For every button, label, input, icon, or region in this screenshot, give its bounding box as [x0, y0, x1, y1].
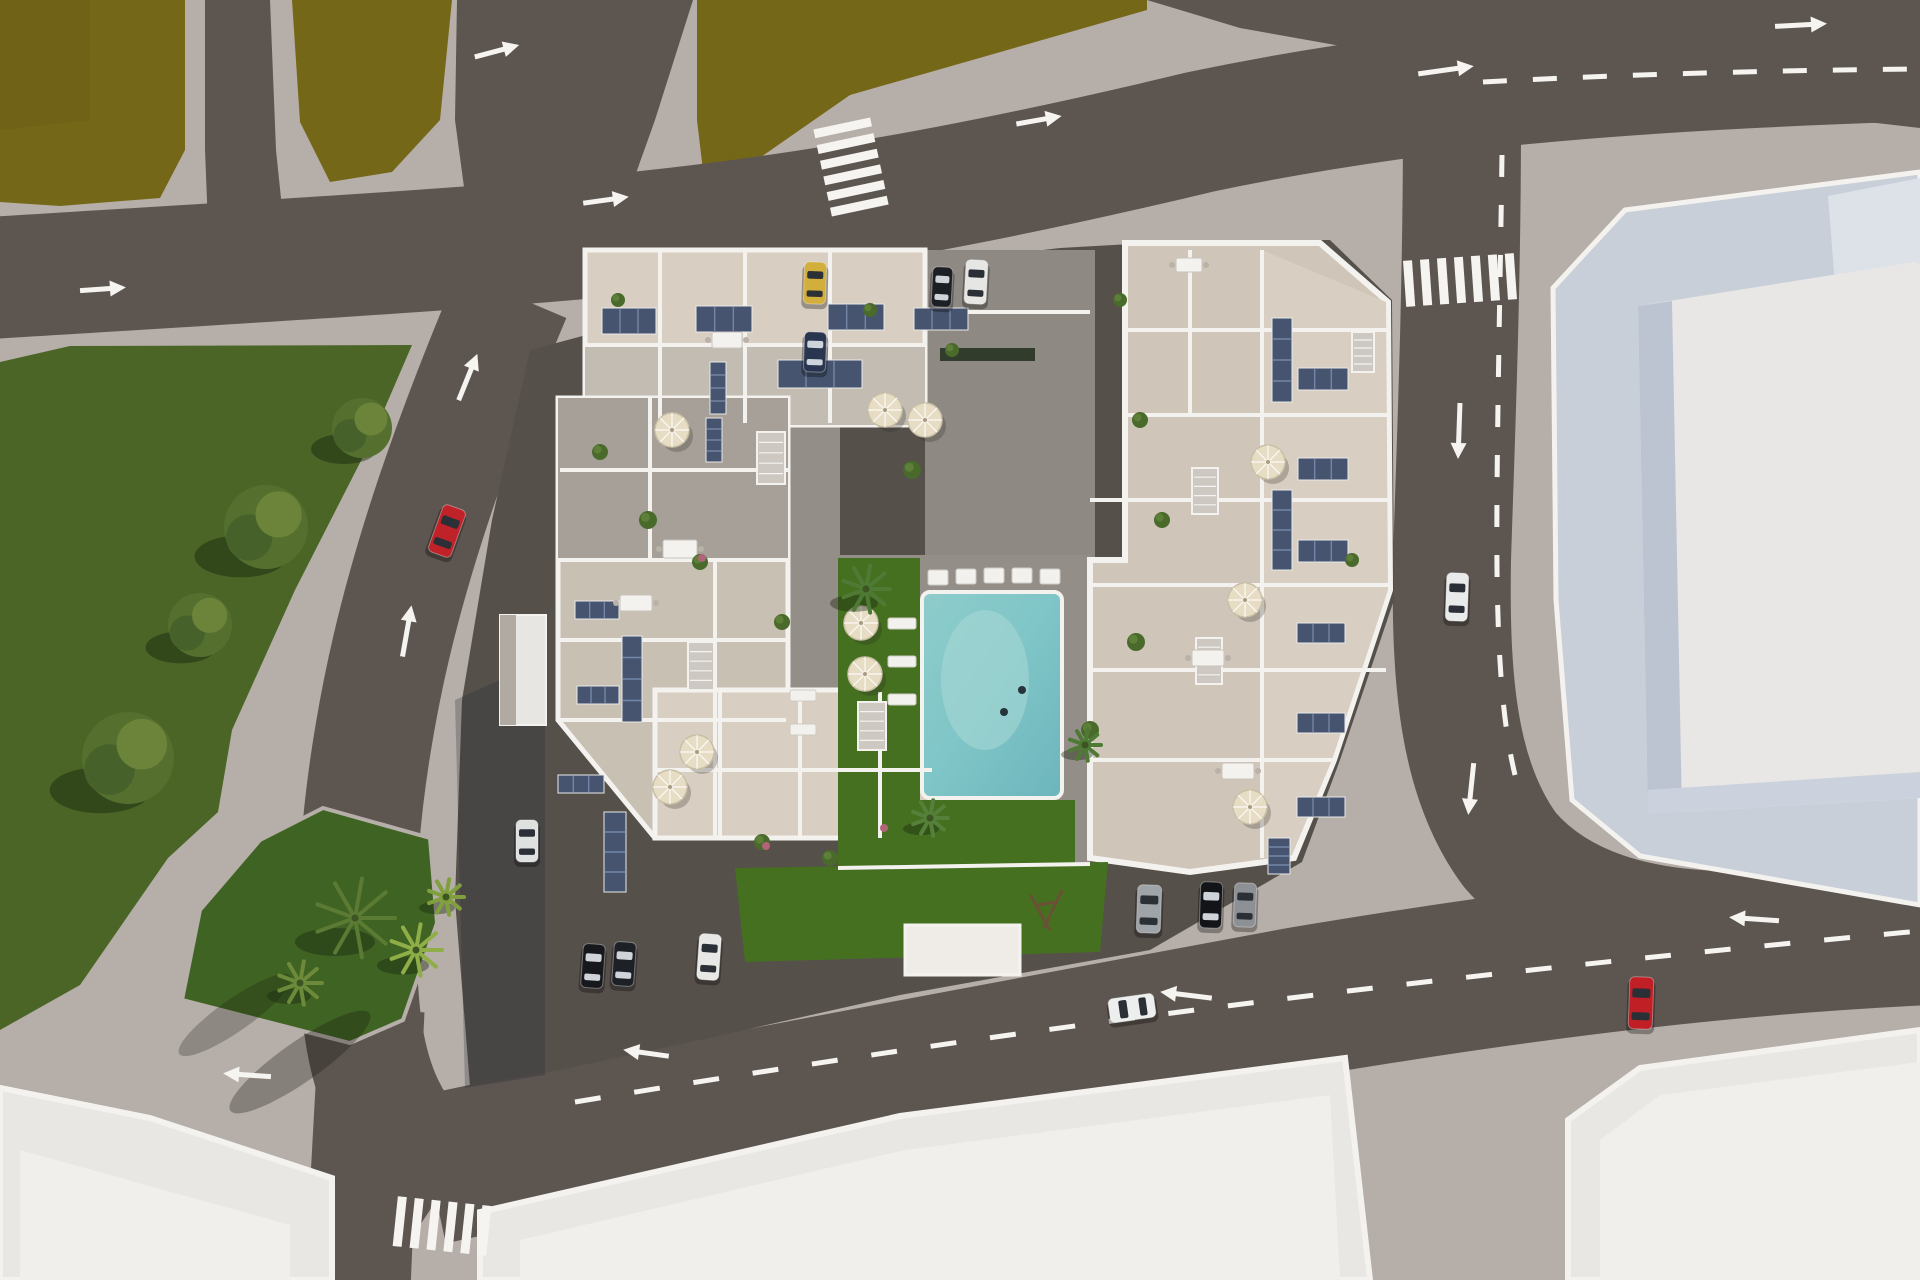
sun-lounger	[790, 724, 816, 735]
flower-pot	[880, 824, 888, 832]
solar-panel	[558, 775, 604, 793]
car-dark-parked-south-2	[609, 941, 638, 992]
sun-lounger	[956, 569, 976, 584]
car-white-parked-west	[514, 820, 540, 867]
solar-panel	[602, 308, 656, 334]
shrub	[1154, 512, 1170, 528]
swimmer-1	[1018, 686, 1026, 694]
stairwell	[858, 702, 886, 750]
patio-table	[1185, 650, 1231, 666]
car-red-bottom-right	[1626, 977, 1656, 1035]
car-yellow-parked-top	[801, 262, 829, 310]
shrub	[592, 444, 608, 460]
solar-panel	[1297, 713, 1345, 733]
solar-panel	[706, 418, 722, 462]
solar-panel	[1272, 318, 1292, 402]
shrub	[1127, 633, 1145, 651]
flower-pot	[698, 554, 706, 562]
pool-highlight	[941, 610, 1029, 750]
shrub	[1345, 553, 1359, 567]
car-gray-parked-southeast	[1231, 883, 1259, 933]
aerial-render	[0, 0, 1920, 1280]
solar-panel	[575, 601, 619, 619]
car-black-parked-southeast	[1197, 882, 1225, 934]
garden-wall	[905, 925, 1020, 975]
shrub	[822, 850, 838, 866]
stairwell	[757, 432, 785, 484]
solar-panel	[710, 362, 726, 414]
shrub	[639, 511, 657, 529]
stairwell	[1192, 468, 1218, 514]
shrub	[1132, 412, 1148, 428]
solar-panel	[577, 686, 619, 704]
sun-lounger	[1040, 569, 1060, 584]
shrub	[774, 614, 790, 630]
car-dark-parked-south-1	[578, 943, 607, 994]
solar-panel	[604, 812, 626, 892]
patio-table	[1215, 763, 1261, 779]
solar-panel	[1297, 797, 1345, 817]
solar-panel	[1272, 490, 1292, 570]
car-white-parked-top	[962, 259, 991, 309]
sun-lounger	[984, 568, 1004, 583]
solar-panel	[1268, 838, 1290, 874]
car-black-parked-top	[929, 266, 955, 312]
car-silver-parked-southeast	[1134, 885, 1164, 939]
sun-lounger	[888, 618, 916, 629]
field-texture-patch	[0, 0, 90, 130]
road-bottom-left-leg	[358, 1010, 372, 1280]
shrub	[945, 343, 959, 357]
sun-lounger	[1012, 568, 1032, 583]
patio-table	[705, 332, 749, 348]
shrub	[863, 303, 877, 317]
car-white-parked-south	[694, 933, 723, 986]
big-building-northeast	[1553, 172, 1920, 905]
solar-panel	[1298, 540, 1348, 562]
car-darkblue-parked-top	[801, 332, 829, 378]
swimmer-2	[1000, 708, 1008, 716]
solar-panel	[1297, 623, 1345, 643]
flower-pot	[762, 842, 770, 850]
car-white-right-road	[1443, 573, 1471, 627]
stairwell	[688, 642, 714, 690]
shrub	[903, 461, 921, 479]
stairwell	[1352, 332, 1374, 372]
solar-panel	[1298, 458, 1348, 480]
solar-panel	[1298, 368, 1348, 390]
solar-panel	[622, 636, 642, 722]
shrub	[1113, 293, 1127, 307]
solar-panel	[696, 306, 752, 332]
sun-lounger	[790, 690, 816, 701]
pool-lawn-south	[838, 800, 1075, 868]
site-plan-canvas	[0, 0, 1920, 1280]
utility-building-west	[500, 615, 546, 725]
sun-lounger	[888, 656, 916, 667]
sun-lounger	[888, 694, 916, 705]
shrub	[611, 293, 625, 307]
sun-lounger	[928, 570, 948, 585]
patio-table	[613, 595, 659, 611]
